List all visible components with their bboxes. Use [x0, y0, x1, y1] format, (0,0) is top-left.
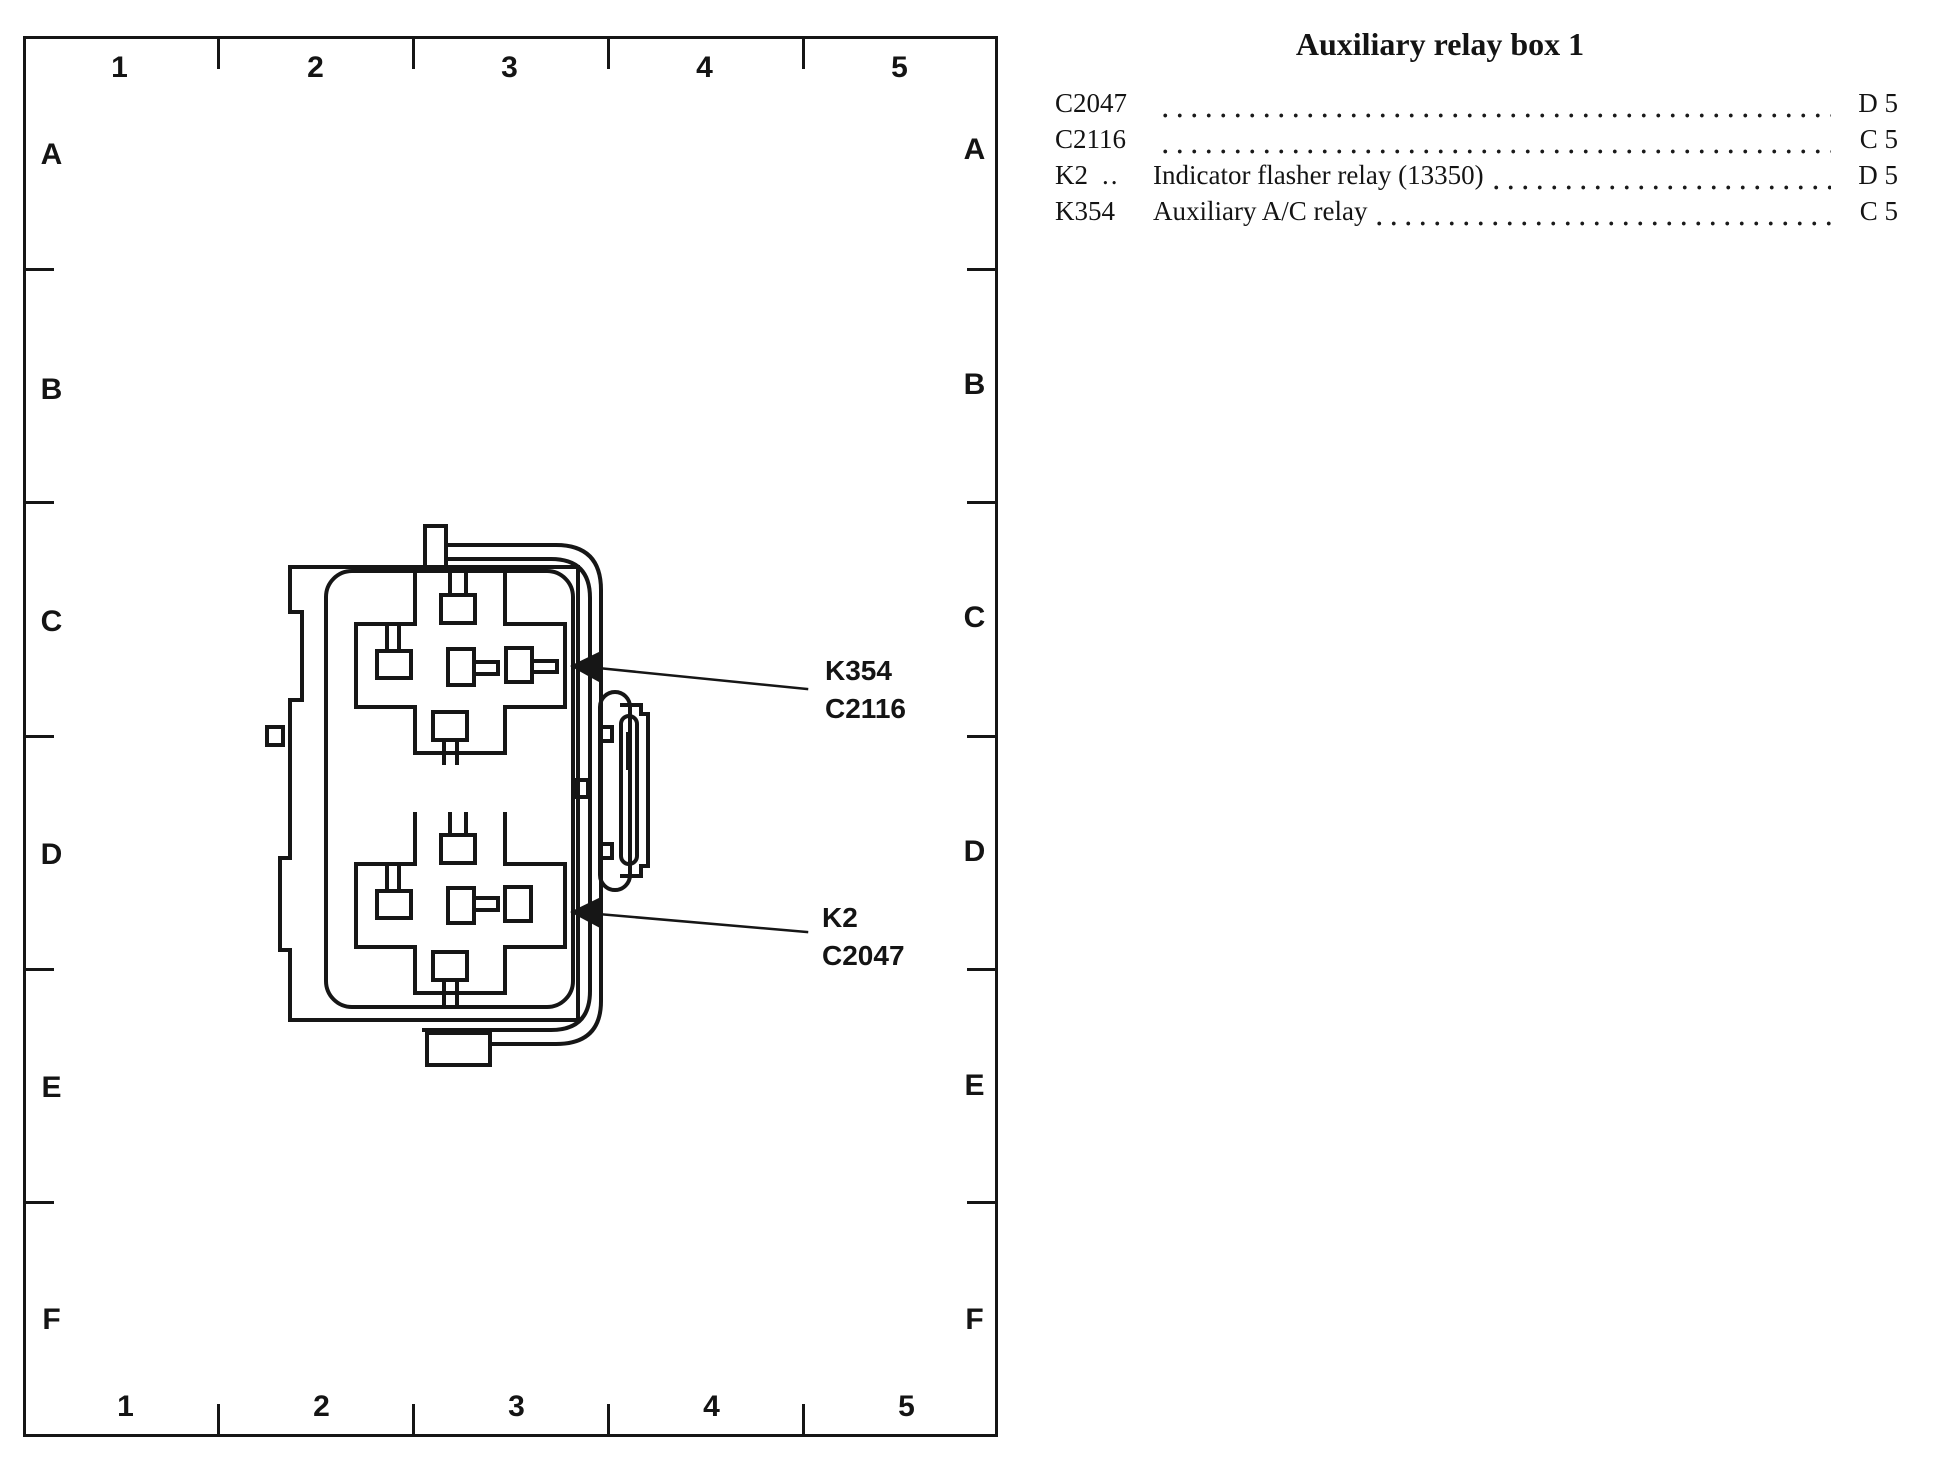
grid-tick-bottom-1 [217, 1404, 220, 1434]
grid-row-label-right-B: B [964, 370, 987, 400]
callout-k2-line2: C2047 [822, 937, 905, 975]
top-tab [425, 526, 446, 568]
legend-row-filler: .. [1102, 160, 1120, 190]
dot-leader [1158, 111, 1831, 120]
legend-row-label: K354 [1055, 196, 1115, 226]
grid-tick-right-2 [967, 501, 995, 504]
callout-arrow-k354 [570, 650, 807, 689]
callout-k354-line1: K354 [825, 652, 906, 690]
legend-row: C2047 D 5 [1055, 88, 1898, 124]
grid-tick-left-4 [26, 968, 54, 971]
legend-row: K354 Auxiliary A/C relay C 5 [1055, 196, 1898, 232]
legend-row: K2.. Indicator flasher relay (13350) D 5 [1055, 160, 1898, 196]
grid-tick-bottom-4 [802, 1404, 805, 1434]
grid-row-label-left-C: C [41, 607, 64, 637]
grid-tick-top-2 [412, 39, 415, 69]
grid-col-label-bottom-1: 1 [117, 1392, 135, 1422]
bottom-tab [427, 1033, 490, 1065]
legend-row-label: C2116 [1055, 124, 1126, 154]
grid-tick-top-3 [607, 39, 610, 69]
grid-row-label-left-B: B [41, 375, 64, 405]
side-connector-bracket [600, 692, 648, 890]
grid-tick-right-3 [967, 735, 995, 738]
callout-k354-line2: C2116 [825, 690, 906, 728]
legend-row-gridref: C 5 [1836, 196, 1898, 227]
grid-col-label-top-5: 5 [891, 53, 909, 83]
grid-tick-top-4 [802, 39, 805, 69]
relay-cavity-outline [326, 571, 573, 1007]
grid-row-label-right-D: D [964, 837, 987, 867]
grid-col-label-top-3: 3 [501, 53, 519, 83]
grid-row-label-right-E: E [964, 1071, 985, 1101]
dot-leader [1372, 219, 1831, 228]
grid-row-label-right-C: C [964, 603, 987, 633]
legend-list: C2047 D 5 C2116 C 5 K2.. Indicator flash… [1055, 88, 1898, 232]
legend-row-label: C2047 [1055, 88, 1127, 118]
legend-row-gridref: D 5 [1836, 160, 1898, 191]
grid-tick-right-5 [967, 1201, 995, 1204]
callout-k2-line1: K2 [822, 899, 905, 937]
grid-col-label-top-2: 2 [307, 53, 325, 83]
grid-tick-top-1 [217, 39, 220, 69]
relay-box-drawing [250, 500, 950, 1100]
left-nub [267, 727, 283, 745]
grid-tick-left-3 [26, 735, 54, 738]
relay-footprint-k2 [356, 814, 565, 1005]
legend-row-label: K2 [1055, 160, 1088, 190]
right-nub [577, 780, 588, 797]
grid-row-label-left-D: D [41, 840, 64, 870]
callout-label-k2: K2 C2047 [822, 899, 905, 975]
dot-leader [1489, 183, 1831, 192]
dot-leader [1158, 147, 1831, 156]
grid-col-label-bottom-4: 4 [703, 1392, 721, 1422]
grid-tick-right-4 [967, 968, 995, 971]
grid-col-label-bottom-2: 2 [313, 1392, 331, 1422]
legend-row: C2116 C 5 [1055, 124, 1898, 160]
grid-tick-bottom-2 [412, 1404, 415, 1434]
legend-row-gridref: C 5 [1836, 124, 1898, 155]
grid-row-label-left-E: E [41, 1073, 62, 1103]
grid-row-label-right-A: A [964, 135, 987, 165]
grid-tick-left-1 [26, 268, 54, 271]
callout-arrow-k2 [570, 896, 807, 932]
grid-tick-bottom-3 [607, 1404, 610, 1434]
grid-row-label-left-A: A [41, 140, 64, 170]
legend-row-gridref: D 5 [1836, 88, 1898, 119]
grid-col-label-top-1: 1 [111, 53, 129, 83]
relay-footprint-k354 [356, 574, 565, 763]
grid-tick-left-2 [26, 501, 54, 504]
legend-row-desc: Auxiliary A/C relay [1153, 196, 1367, 227]
grid-tick-left-5 [26, 1201, 54, 1204]
legend-row-desc: Indicator flasher relay (13350) [1153, 160, 1484, 191]
grid-col-label-top-4: 4 [696, 53, 714, 83]
grid-tick-right-1 [967, 268, 995, 271]
grid-row-label-left-F: F [42, 1305, 61, 1335]
grid-row-label-right-F: F [965, 1305, 984, 1335]
grid-col-label-bottom-5: 5 [898, 1392, 916, 1422]
manual-page: 1 2 3 4 5 1 2 3 4 5 A B C D E F A B C D … [0, 0, 1934, 1472]
grid-col-label-bottom-3: 3 [508, 1392, 526, 1422]
page-title: Auxiliary relay box 1 [1140, 26, 1740, 63]
callout-label-k354: K354 C2116 [825, 652, 906, 728]
